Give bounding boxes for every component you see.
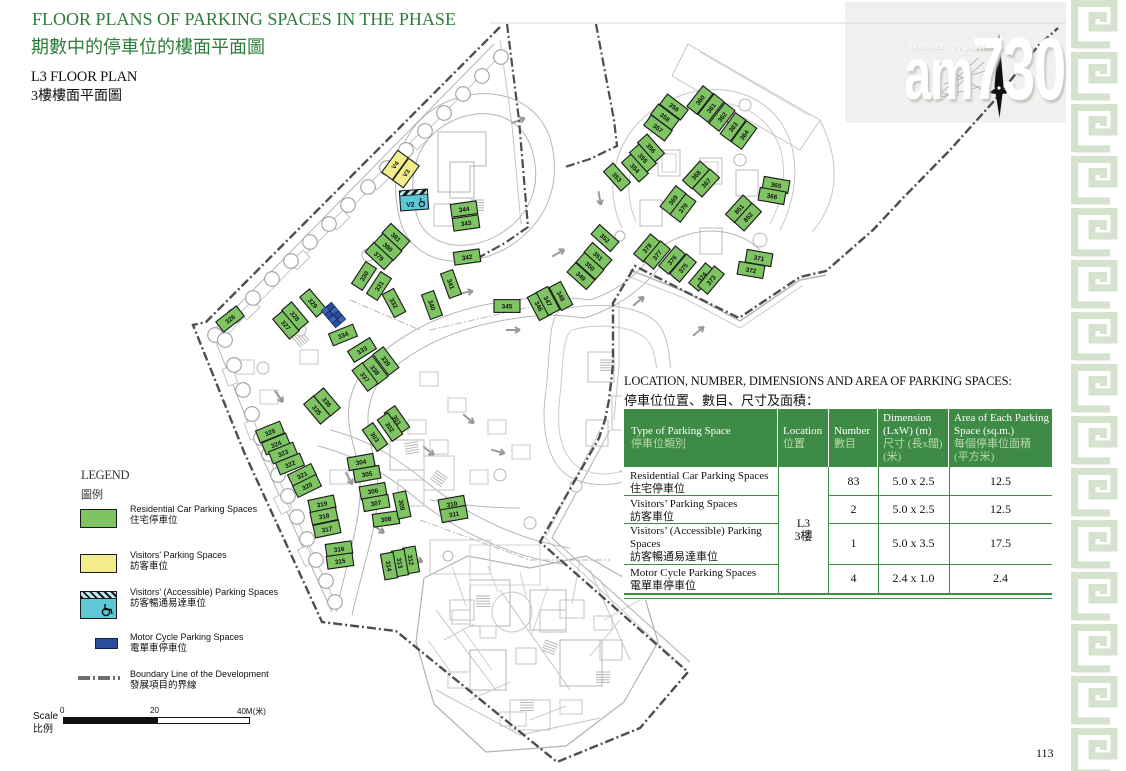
- svg-text:V2: V2: [406, 201, 415, 209]
- svg-text:345: 345: [502, 304, 513, 311]
